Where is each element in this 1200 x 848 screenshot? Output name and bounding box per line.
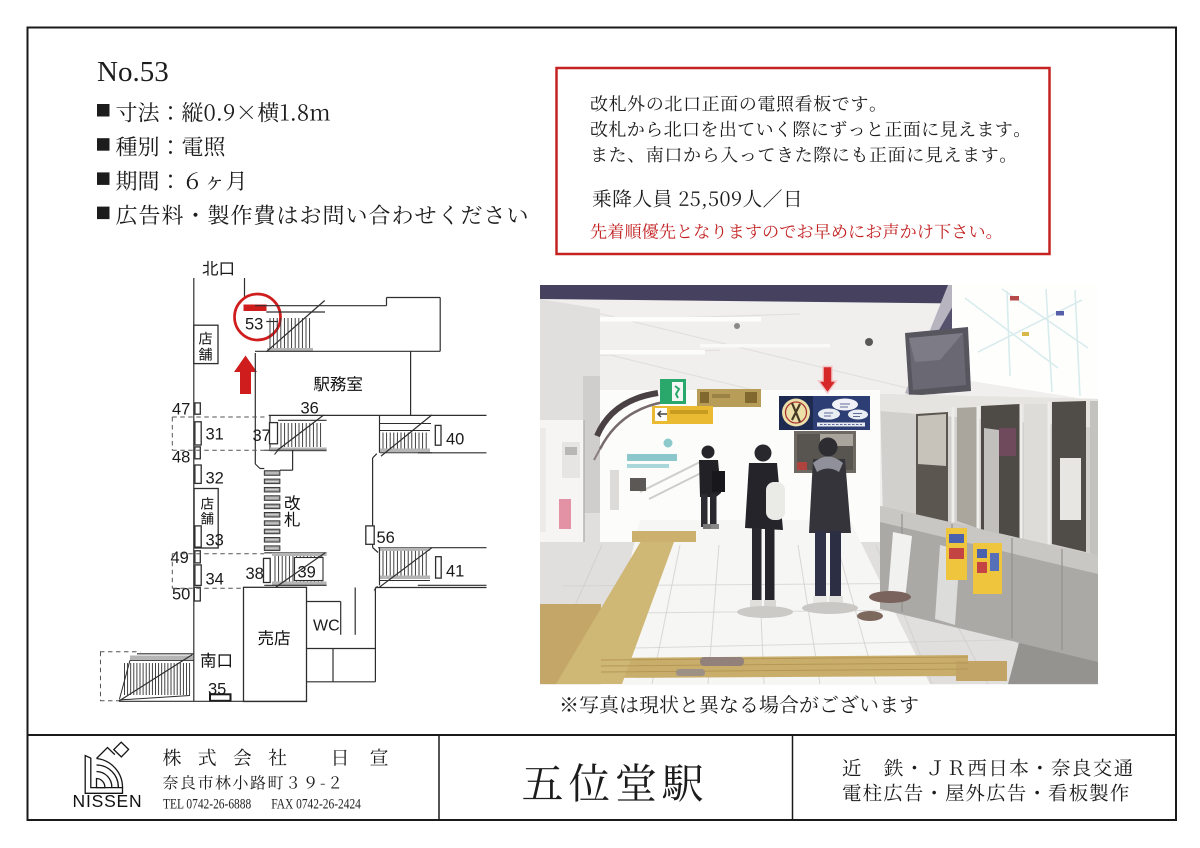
svg-text:No.53: No.53	[97, 56, 169, 88]
svg-text:37: 37	[253, 427, 271, 445]
svg-text:WC: WC	[313, 618, 340, 635]
svg-text:32: 32	[206, 470, 224, 488]
svg-text:33: 33	[206, 532, 224, 550]
svg-text:41: 41	[446, 563, 464, 581]
svg-text:56: 56	[377, 529, 395, 547]
svg-text:47: 47	[172, 401, 190, 419]
svg-text:53: 53	[245, 316, 263, 334]
svg-text:34: 34	[206, 571, 224, 589]
svg-text:40: 40	[446, 431, 464, 449]
svg-text:48: 48	[172, 449, 190, 467]
svg-text:31: 31	[206, 426, 224, 444]
svg-text:49: 49	[171, 549, 189, 567]
svg-text:36: 36	[301, 400, 319, 418]
svg-text:NISSEN: NISSEN	[73, 791, 143, 811]
svg-text:38: 38	[246, 565, 264, 583]
svg-text:TEL 0742-26-6888 FAX 074: TEL 0742-26-6888 FAX 0742-26-2424	[163, 795, 361, 812]
